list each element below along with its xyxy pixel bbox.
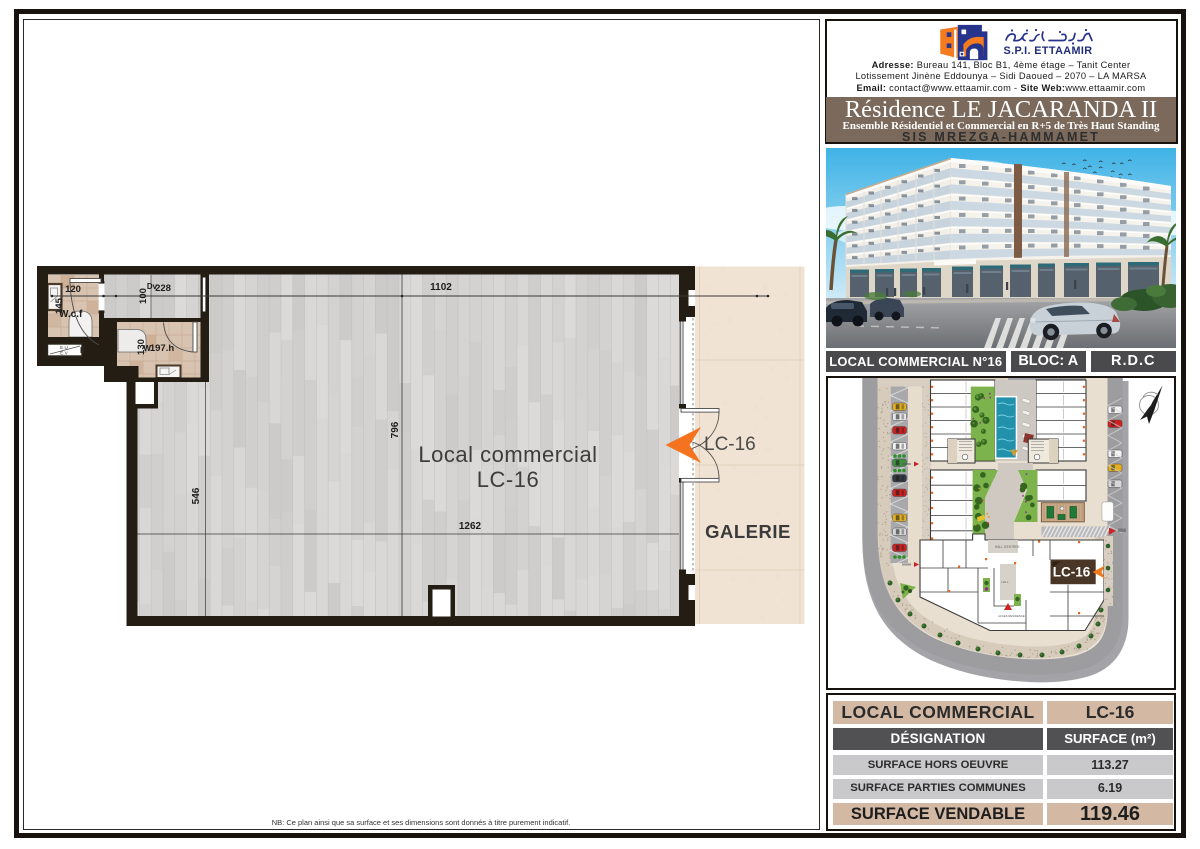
svg-text:Dv: Dv bbox=[147, 282, 158, 291]
svg-text:ACCES RESIDENCE: ACCES RESIDENCE bbox=[998, 614, 1025, 618]
svg-text:GALERIE: GALERIE bbox=[705, 521, 791, 542]
svg-text:E.U: E.U bbox=[60, 345, 68, 350]
svg-text:W.c.f: W.c.f bbox=[59, 309, 83, 320]
svg-text:HALL: HALL bbox=[1002, 580, 1009, 584]
svg-text:LC-16: LC-16 bbox=[1053, 564, 1091, 579]
svg-text:197.h: 197.h bbox=[150, 343, 174, 354]
svg-text:HALL D'ENTREE: HALL D'ENTREE bbox=[995, 545, 1020, 549]
svg-text:E.V: E.V bbox=[60, 351, 68, 356]
svg-text:LC-16: LC-16 bbox=[704, 434, 756, 455]
svg-text:1262: 1262 bbox=[459, 521, 482, 532]
svg-text:1102: 1102 bbox=[430, 282, 452, 293]
svg-text:W.: W. bbox=[143, 344, 152, 353]
svg-text:120: 120 bbox=[65, 284, 81, 295]
svg-text:546: 546 bbox=[191, 487, 202, 504]
svg-text:Local commercial: Local commercial bbox=[418, 442, 597, 467]
svg-text:LC-16: LC-16 bbox=[477, 467, 539, 492]
svg-text:796: 796 bbox=[390, 421, 401, 438]
svg-text:228: 228 bbox=[155, 283, 171, 294]
